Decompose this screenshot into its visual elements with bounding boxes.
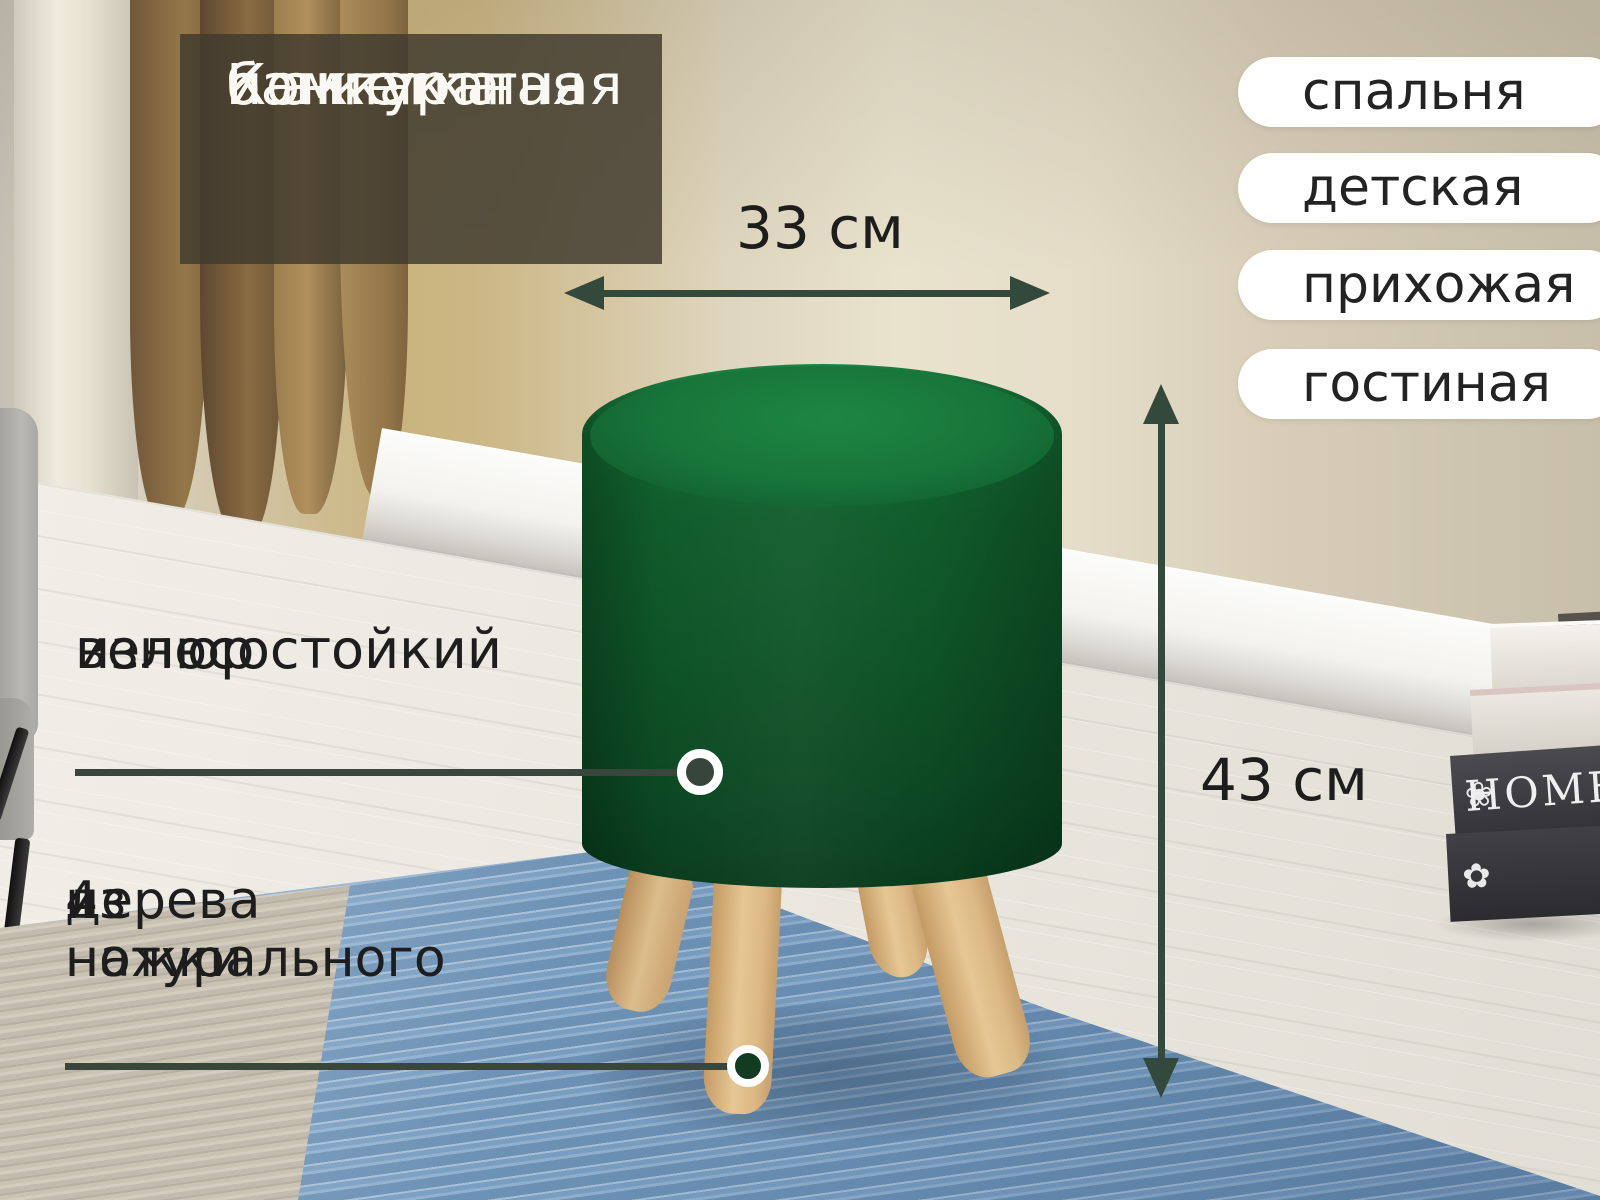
room-tag-label: спальня [1302,62,1526,122]
height-dimension-line [1158,418,1165,1062]
room-tag-label: прихожая [1302,255,1575,315]
title-box: Компактная и аккуратная банкетка [180,34,662,264]
feature-line: дерева [65,872,260,930]
arrow-up-icon [1143,384,1179,424]
arrow-right-icon [1010,276,1050,310]
product-card: ❀ HOME ✿ Компактная и аккуратная банкетк… [0,0,1600,1200]
width-dimension-line [600,290,1014,297]
title-line: банкетка [226,50,501,122]
room-tag-kids: детская [1238,153,1600,223]
room-tag-livingroom: гостиная [1238,349,1600,419]
room-tag-label: гостиная [1302,354,1551,414]
book-spine-dark: ✿ [1446,824,1600,922]
leader-line-legs [65,1063,733,1070]
armchair [0,408,38,742]
arrow-left-icon [564,276,604,310]
callout-dot-velour [677,749,723,795]
callout-dot-legs [727,1045,769,1087]
width-dimension-label: 33 см [620,194,1020,262]
book-title: HOME [1463,761,1600,821]
arrow-down-icon [1143,1058,1179,1098]
book-spine-home: ❀ HOME [1450,743,1600,837]
room-tag-hallway: прихожая [1238,250,1600,320]
room-tag-label: детская [1302,158,1523,218]
book-spine-white [1490,619,1600,690]
stool-seat-top [590,366,1054,506]
feature-line: велюр [75,620,254,680]
room-tag-bedroom: спальня [1238,57,1600,127]
floral-ornament-icon: ✿ [1461,856,1492,897]
leader-line-velour [75,769,681,776]
height-dimension-label: 43 см [1200,746,1368,814]
